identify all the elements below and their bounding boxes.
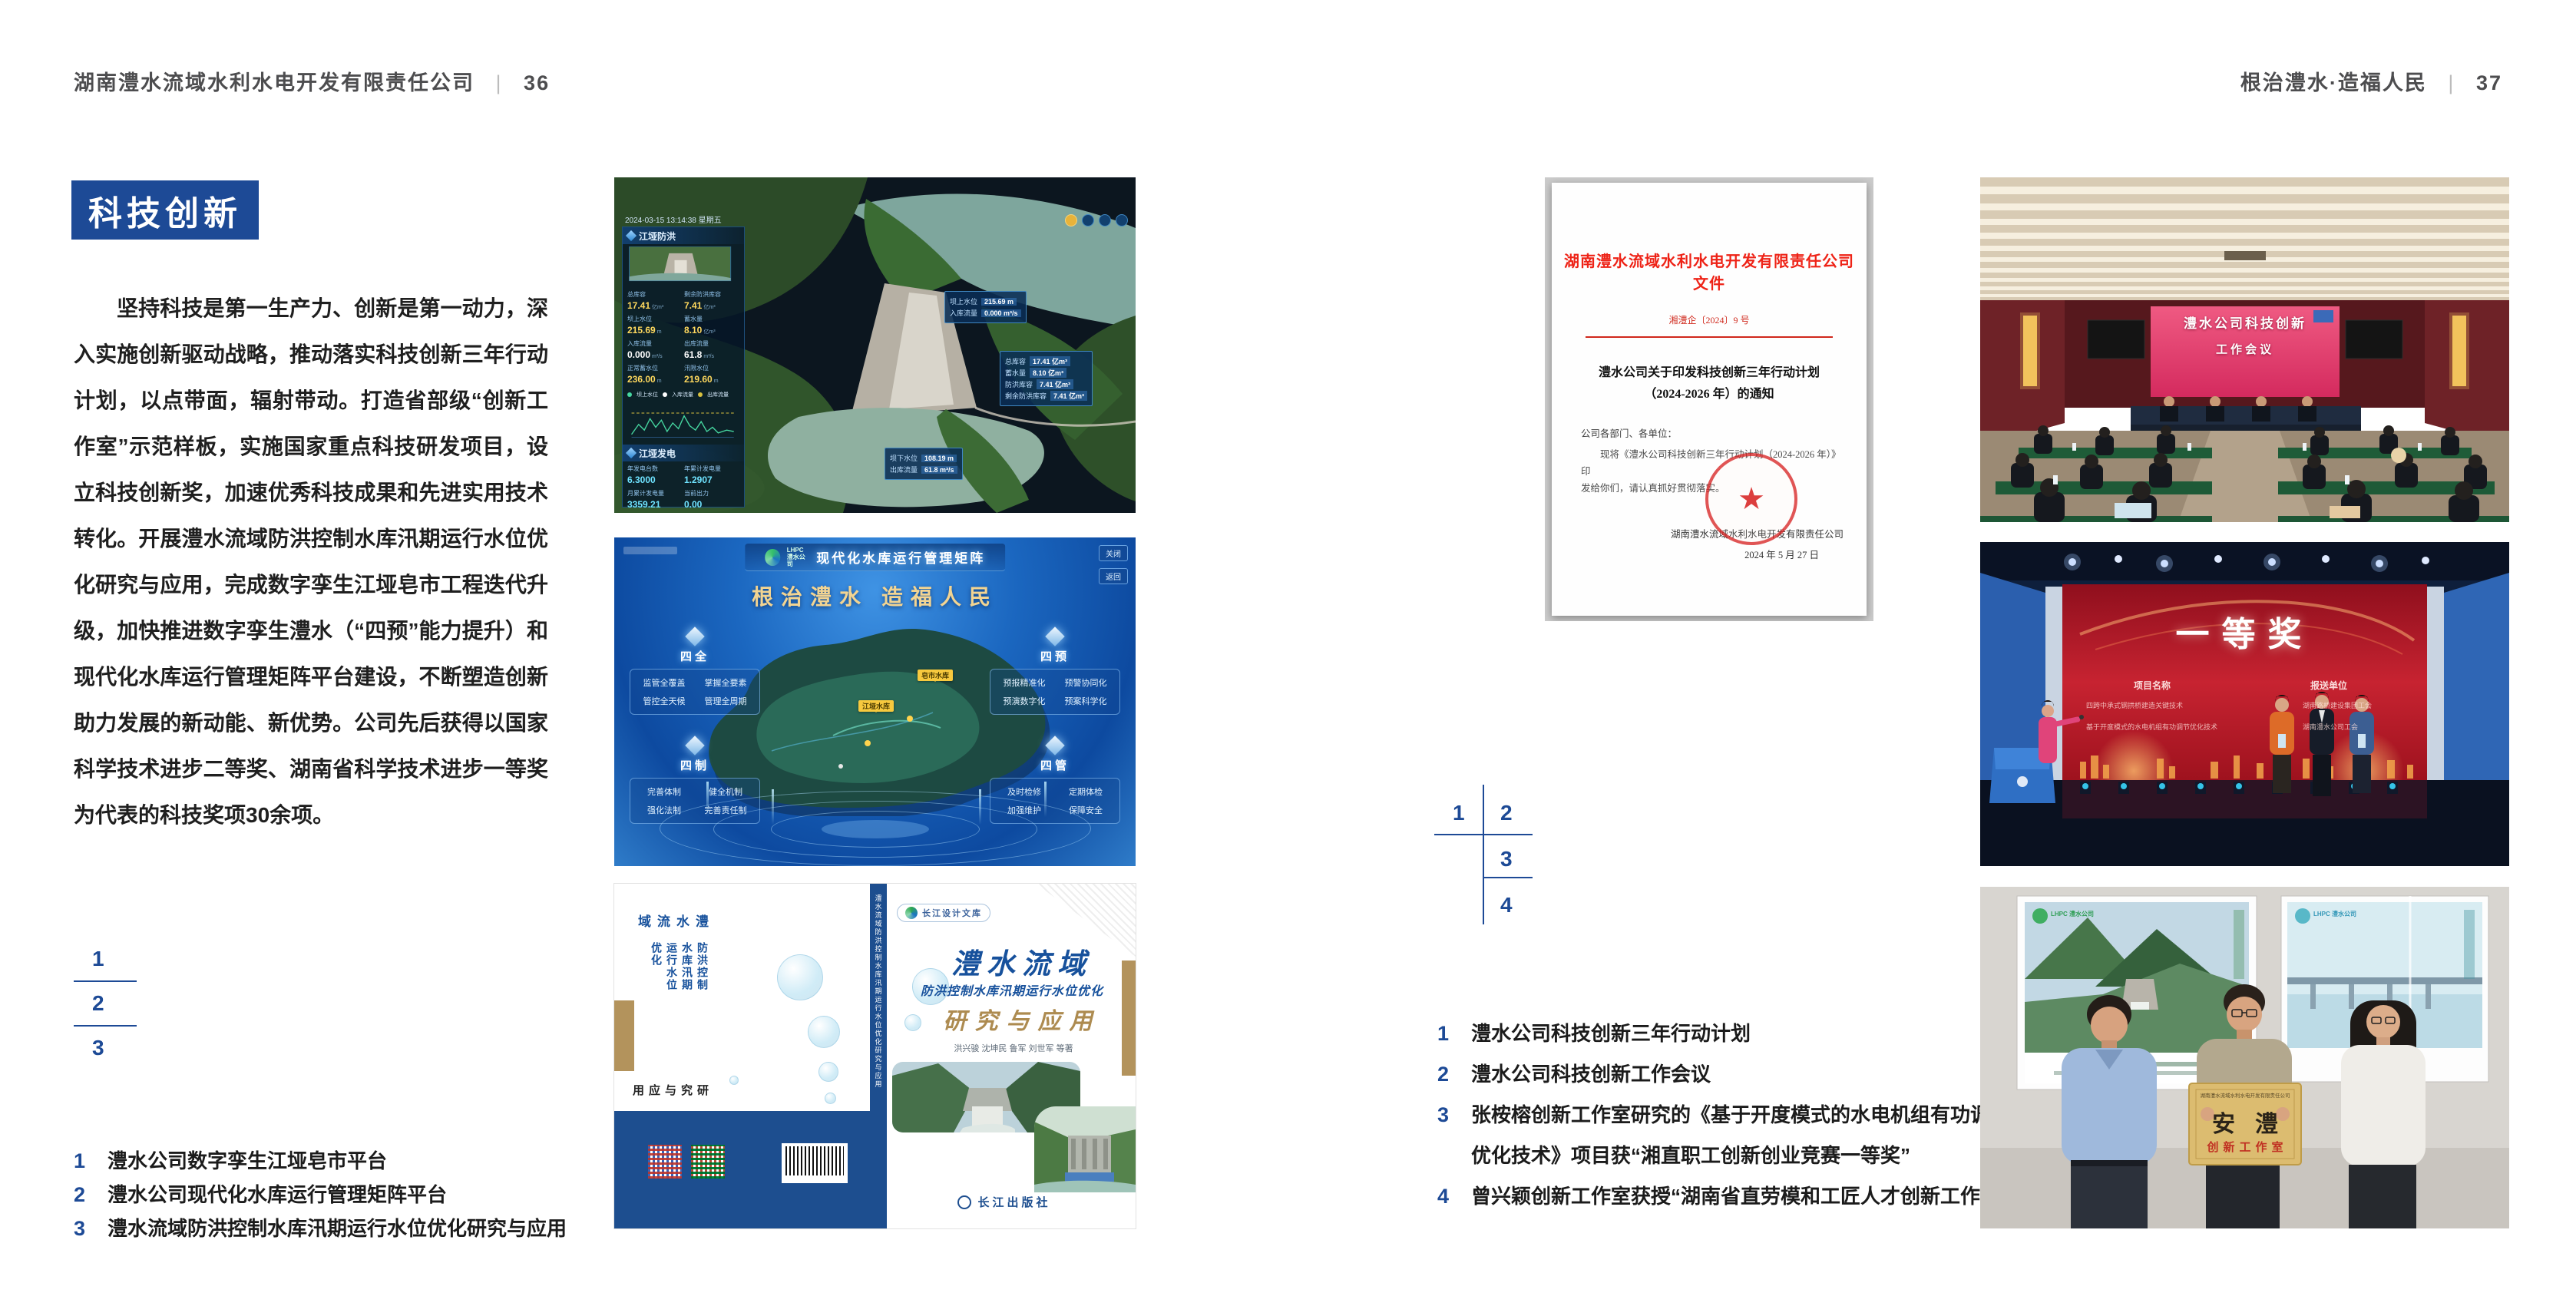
legend-dot xyxy=(698,392,703,397)
official-seal: ★ xyxy=(1705,453,1797,545)
award-column-header: 报送单位 xyxy=(2310,679,2347,692)
stat-cell: 坝上水位215.69m xyxy=(627,315,683,337)
stat-cell: 汛限水位219.60m xyxy=(684,364,739,386)
stat-cell: 年累计发电量1.2907 xyxy=(684,465,739,487)
figure-divider xyxy=(1434,834,1533,835)
caption-text: 澧水公司现代化水库运行管理矩阵平台 xyxy=(107,1178,447,1212)
plaque-name: 安澧 xyxy=(2192,1105,2298,1139)
star-icon: ★ xyxy=(1738,484,1765,514)
stat-cell: 正常蓄水位236.00m xyxy=(627,364,683,386)
header-separator: | xyxy=(496,71,503,94)
caption-number: 1 xyxy=(1437,1013,1471,1054)
dashboard-timestamp: 2024-03-15 13:14:38 星期五 xyxy=(625,213,722,225)
changjiang-design-logo-icon xyxy=(905,907,918,919)
plaque-subtitle: 创新工作室 xyxy=(2192,1139,2298,1155)
figure-divider xyxy=(1483,877,1533,878)
document-salutation: 公司各部门、各单位： xyxy=(1581,425,1867,440)
lhpc-logo-text: LHPC澧水公司 xyxy=(787,547,811,567)
figure-number: 2 xyxy=(74,990,137,1017)
caption-text: 曾兴颖创新工作室获授“湖南省直劳模和工匠人才创新工作室” xyxy=(1471,1176,2018,1217)
user-icon xyxy=(1065,214,1077,226)
caption-row: 1 澧水公司数字孪生江垭皂市平台 xyxy=(74,1144,627,1178)
award-screen-title: 一等奖 xyxy=(2062,607,2427,656)
caption-list-left: 1 澧水公司数字孪生江垭皂市平台 2 澧水公司现代化水库运行管理矩阵平台 3 澧… xyxy=(74,1144,627,1245)
callout-storage: 总库容17.41 亿m³ 蓄水量8.10 亿m³ 防洪库容7.41 亿m³ 剩余… xyxy=(1000,351,1093,406)
figure-number: 3 xyxy=(74,1035,137,1061)
poster-lhpc-logo-text: LHPC 澧水公司 xyxy=(2051,910,2094,918)
award-column-header: 项目名称 xyxy=(2134,679,2171,692)
light-pillar xyxy=(979,789,981,825)
caption-row: 2 澧水公司科技创新工作会议 xyxy=(1437,1054,2052,1095)
meeting-screen-text: 澧水公司科技创新 工作会议 xyxy=(2151,312,2340,357)
award-stage-art xyxy=(1980,542,2509,866)
figure-number-grid-right: 1 2 3 4 xyxy=(1434,785,1536,924)
diamond-icon xyxy=(626,448,637,458)
back-button: 返回 xyxy=(1099,568,1128,584)
qr-code xyxy=(648,1145,682,1179)
caption-number: 3 xyxy=(74,1212,107,1245)
water-bubble xyxy=(729,1076,739,1085)
document-title: 澧水公司关于印发科技创新三年行动计划 （2024-2026 年）的通知 xyxy=(1552,362,1867,405)
panel-siquan: 四全 监管全覆盖掌握全要素 管控全天候管理全周期 xyxy=(630,630,760,715)
matrix-header: LHPC澧水公司 现代化水库运行管理矩阵 xyxy=(745,544,1006,571)
figure-number-column-left: 1 2 3 xyxy=(74,946,137,1061)
poster-lhpc-logo-text: LHPC 澧水公司 xyxy=(2313,910,2356,918)
caption-row: 4 曾兴颖创新工作室获授“湖南省直劳模和工匠人才创新工作室” xyxy=(1437,1176,2052,1217)
header-separator: | xyxy=(2448,71,2455,94)
caption-row: 1 澧水公司科技创新三年行动计划 xyxy=(1437,1013,2052,1054)
document-number: 湘澧企〔2024〕9 号 xyxy=(1552,313,1867,326)
caption-row: 3 张桉榕创新工作室研究的《基于开度模式的水电机组有功调节优化技术》项目获“湘直… xyxy=(1437,1095,2052,1176)
stat-cell: 总库容17.41亿m³ xyxy=(627,290,683,312)
water-bubble xyxy=(808,1016,840,1048)
publisher-logo-icon xyxy=(957,1195,971,1209)
caption-text: 澧水公司数字孪生江垭皂市平台 xyxy=(107,1144,387,1178)
panel-title-bar: 江垭发电 xyxy=(623,445,744,461)
stat-cell: 年发电台数6.3000 xyxy=(627,465,683,487)
figure-number: 2 xyxy=(1500,800,1513,826)
matrix-timestamp xyxy=(623,547,677,554)
figure-number: 3 xyxy=(1500,846,1513,872)
plaque-org-line: 湖南澧水流域水利水电开发有限责任公司 xyxy=(2192,1091,2298,1099)
document-red-header: 湖南澧水流域水利水电开发有限责任公司文件 xyxy=(1561,249,1857,293)
barcode xyxy=(782,1143,848,1183)
map-marker-jiangya: 江垭水库 xyxy=(858,700,894,712)
book-title-tail: 研究与应用 xyxy=(921,1002,1123,1036)
stat-cell: 蓄水量8.10亿m³ xyxy=(684,315,739,337)
figure-number: 4 xyxy=(1500,892,1513,918)
locate-icon xyxy=(1099,214,1111,226)
book-title-sub: 防洪控制水库汛期运行水位优化 xyxy=(894,980,1130,999)
book-spine: 澧水流域防洪控制水库汛期运行水位优化研究与应用 xyxy=(870,884,887,1228)
award-unit: 湖南路桥建设集团工会 xyxy=(2303,700,2372,710)
dam-aerial-thumbnail xyxy=(623,244,746,287)
section-title: 科技创新 xyxy=(71,180,259,240)
caption-row: 3 澧水流域防洪控制水库汛期运行水位优化研究与应用 xyxy=(74,1212,627,1245)
figure-book-cover: 澧水流域 防洪控制水库汛期运行水位优化 研究与应用 澧水流域防洪控制水库汛期运行… xyxy=(614,884,1136,1228)
water-bubble xyxy=(818,1062,838,1082)
book-title-main: 澧水流域 xyxy=(921,941,1123,982)
plaque-photo-art xyxy=(1980,887,2509,1228)
award-unit: 湖南澧水公司工会 xyxy=(2303,722,2358,732)
header-page-number-36: 36 xyxy=(524,71,550,94)
panel-siyu: 四预 预报精准化预警协同化 预演数字化预案科学化 xyxy=(990,630,1120,715)
light-pillar xyxy=(1044,782,1047,817)
legend-dot xyxy=(627,392,632,397)
dashboard-toolbar-icons xyxy=(1065,214,1128,226)
ripple-glow xyxy=(822,820,929,838)
diamond-icon xyxy=(626,230,637,241)
map-marker-zaoshi: 皂市水库 xyxy=(918,670,953,681)
caption-list-right: 1 澧水公司科技创新三年行动计划 2 澧水公司科技创新工作会议 3 张桉榕创新工… xyxy=(1437,1013,2052,1217)
chart-legend: 坝上水位 入库流量 出库流量 xyxy=(623,389,744,400)
tan-block xyxy=(1122,960,1136,1076)
caption-number: 2 xyxy=(74,1178,107,1212)
back-cover-vertical-title: 澧水流域 防洪控制水库汛期运行水位优化 研究与应用 xyxy=(630,914,710,1106)
figure-meeting-photo: 澧水公司科技创新 工作会议 xyxy=(1980,177,2509,522)
figure-official-document: 湖南澧水流域水利水电开发有限责任公司文件 湘澧企〔2024〕9 号 澧水公司关于… xyxy=(1545,177,1873,621)
water-bubble xyxy=(904,1014,921,1031)
matrix-slogan: 根治澧水 造福人民 xyxy=(752,580,998,611)
header-right: 根治澧水·造福人民 | 37 xyxy=(2240,66,2502,96)
header-left: 湖南澧水流域水利水电开发有限责任公司 | 36 xyxy=(74,66,550,96)
panel-jiangya-flood: 江垭防洪 总库容17.41亿m³ 剩余防洪库容7.41亿m³ 坝上水位215.6… xyxy=(622,226,745,508)
stat-cell: 当前出力0.00 xyxy=(684,489,739,511)
legend-dot xyxy=(663,392,667,397)
matrix-title: 现代化水库运行管理矩阵 xyxy=(816,547,985,567)
water-bubble xyxy=(825,1093,836,1104)
caption-row: 2 澧水公司现代化水库运行管理矩阵平台 xyxy=(74,1178,627,1212)
caption-text: 张桉榕创新工作室研究的《基于开度模式的水电机组有功调节优化技术》项目获“湘直职工… xyxy=(1471,1095,2018,1176)
close-button: 关闭 xyxy=(1099,545,1128,561)
document-red-rule xyxy=(1586,336,1833,338)
stat-cell: 月累计发电量3359.21 xyxy=(627,489,683,511)
header-motto: 根治澧水·造福人民 xyxy=(2240,71,2427,94)
power-stats-grid: 年发电台数6.3000 年累计发电量1.2907 月累计发电量3359.21 当… xyxy=(623,461,744,513)
light-pillar xyxy=(772,789,774,825)
water-bubble xyxy=(777,954,823,1000)
publisher-mark: 长江出版社 xyxy=(928,1194,1081,1210)
book-spread: 湖南澧水流域水利水电开发有限责任公司 | 36 根治澧水·造福人民 | 37 科… xyxy=(0,0,2576,1306)
qr-code xyxy=(691,1145,725,1179)
cube-icon xyxy=(685,736,704,755)
figure-divider xyxy=(74,980,137,982)
figure-digital-twin-dashboard: 防洪兴利调度 实时监测 洪水预报 防洪预警 数字孪生江垭皂市 风险预判 预案生成… xyxy=(614,177,1136,513)
flood-stats-grid: 总库容17.41亿m³ 剩余防洪库容7.41亿m³ 坝上水位215.69m 蓄水… xyxy=(623,287,744,389)
caption-number: 3 xyxy=(1437,1095,1471,1136)
callout-downstream: 坝下水位108.19 m 出库流量61.8 m³/s xyxy=(885,448,963,480)
figure-plaque-photo: 湖南澧水流域水利水电开发有限责任公司 安澧 创新工作室 LHPC 澧水公司 LH… xyxy=(1980,887,2509,1228)
cube-icon xyxy=(685,627,704,646)
caption-number: 4 xyxy=(1437,1176,1471,1217)
caption-text: 澧水公司科技创新三年行动计划 xyxy=(1471,1013,2018,1054)
stat-cell: 剩余防洪库容7.41亿m³ xyxy=(684,290,739,312)
series-badge: 长江设计文库 xyxy=(897,904,990,922)
figure-divider xyxy=(74,1025,137,1027)
figure-number: 1 xyxy=(74,946,137,972)
panel-title: 江垭发电 xyxy=(639,447,676,460)
caption-text: 澧水流域防洪控制水库汛期运行水位优化研究与应用 xyxy=(107,1212,567,1245)
cube-icon xyxy=(1045,627,1064,646)
caption-number: 1 xyxy=(74,1144,107,1178)
caption-number: 2 xyxy=(1437,1054,1471,1095)
document-signer: 湖南澧水流域水利水电开发有限责任公司 xyxy=(1552,526,1844,541)
lhpc-logo-icon xyxy=(765,549,781,566)
panel-title: 江垭防洪 xyxy=(639,230,676,243)
document-page: 湖南澧水流域水利水电开发有限责任公司文件 湘澧企〔2024〕9 号 澧水公司关于… xyxy=(1552,183,1867,616)
award-project: 四跨中承式钢拱桥建造关键技术 xyxy=(2086,700,2183,710)
award-project: 基于开度模式的水电机组有功调节优化技术 xyxy=(2086,722,2217,732)
header-company: 湖南澧水流域水利水电开发有限责任公司 xyxy=(74,71,475,94)
caption-text: 澧水公司科技创新工作会议 xyxy=(1471,1054,2018,1095)
cube-icon xyxy=(1045,736,1064,755)
figure-number: 1 xyxy=(1453,800,1465,826)
panel-title-bar: 江垭防洪 xyxy=(623,227,744,244)
stat-cell: 出库流量61.8m³/s xyxy=(684,339,739,362)
callout-upstream: 坝上水位215.69 m 入库流量0.000 m³/s xyxy=(944,291,1027,323)
figure-award-ceremony-photo: 一等奖 项目名称 报送单位 四跨中承式钢拱桥建造关键技术 湖南路桥建设集团工会 … xyxy=(1980,542,2509,866)
document-date: 2024 年 5 月 27 日 xyxy=(1552,547,1819,561)
dam-spillway-photo xyxy=(1034,1106,1136,1192)
water-level-chart xyxy=(623,400,746,445)
light-pillar xyxy=(706,782,709,817)
figure-divider-vertical xyxy=(1483,785,1484,924)
stat-cell: 入库流量0.000m³/s xyxy=(627,339,683,362)
book-authors: 洪兴骏 沈坤民 鲁军 刘世军 等著 xyxy=(904,1042,1123,1054)
figure-matrix-platform: LHPC澧水公司 现代化水库运行管理矩阵 关闭 返回 根治澧水 造福人民 皂市水… xyxy=(614,537,1136,866)
spine-title: 澧水流域防洪控制水库汛期运行水位优化研究与应用 xyxy=(874,894,884,1148)
settings-icon xyxy=(1116,214,1128,226)
body-paragraph: 坚持科技是第一生产力、创新是第一动力，深入实施创新驱动战略，推动落实科技创新三年… xyxy=(74,286,548,838)
header-page-number-37: 37 xyxy=(2476,71,2502,94)
layers-icon xyxy=(1082,214,1094,226)
